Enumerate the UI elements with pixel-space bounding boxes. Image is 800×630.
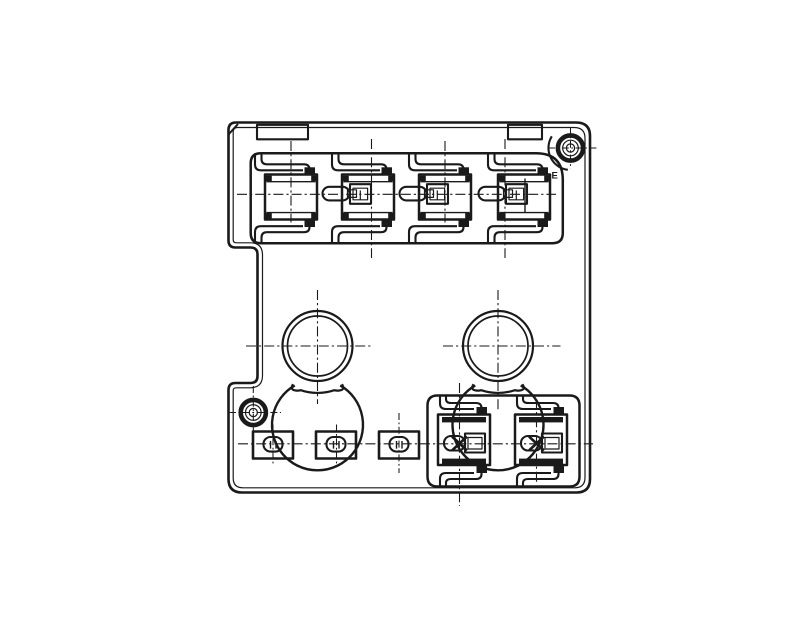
connector-cavity-3 [409,153,471,243]
mounting-screw-top-right [548,135,583,169]
cavity-e-label: E [552,171,558,182]
connector-cavity-1 [255,153,317,243]
page: { "canvas": { "width": 800, "height": 63… [0,0,800,630]
connector-cavity-2 [332,153,394,243]
technical-drawing-canvas: E [0,0,800,630]
connector-cavity-br-1 [438,396,490,487]
connector-region-top: E [251,153,563,243]
connector-region-bottom-right [428,396,580,487]
connector-cavity-br-2 [515,396,567,487]
connector-housing-drawing: E [0,0,800,630]
connector-cavity-4 [488,153,550,243]
